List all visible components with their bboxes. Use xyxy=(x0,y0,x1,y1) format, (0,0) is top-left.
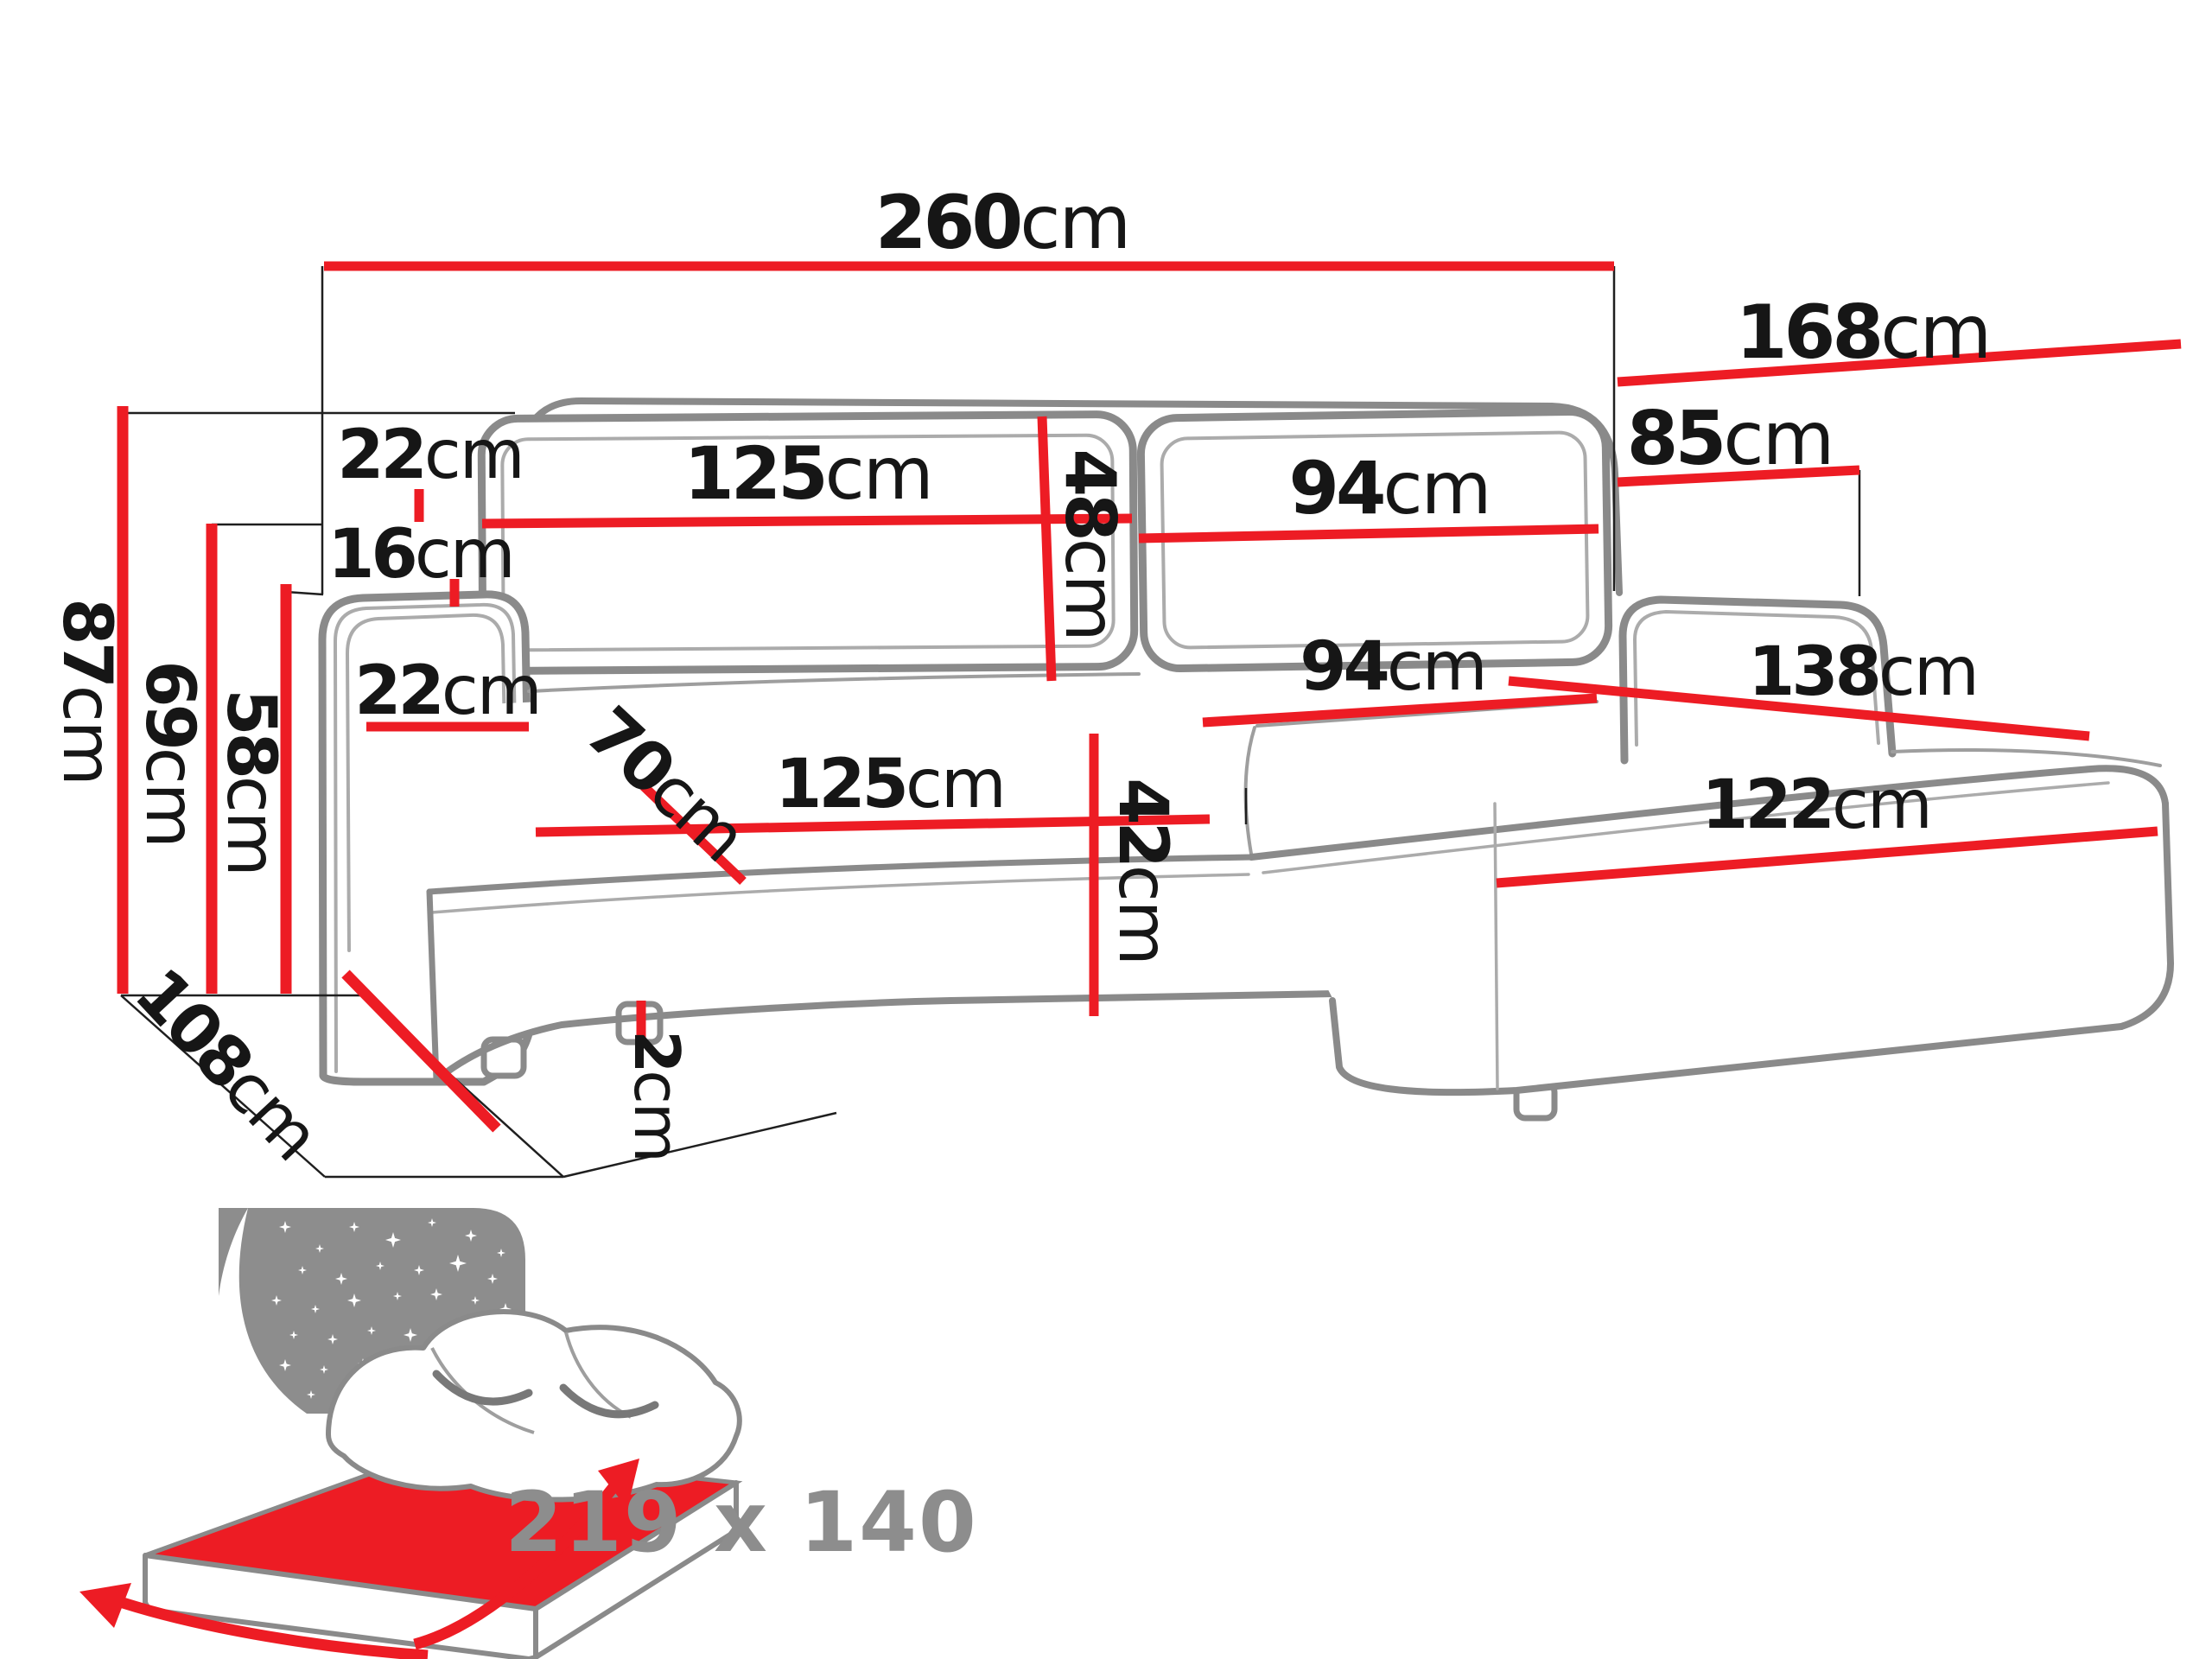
label-backrest-right-height: 85cm xyxy=(1627,396,1834,482)
label-total-depth: 108cm xyxy=(119,954,333,1175)
label-armrest-width: 22cm xyxy=(354,652,540,730)
label-seat-right-width: 94cm xyxy=(1300,628,1485,706)
sleeping-function-icon: 219 x 140 xyxy=(79,1208,978,1659)
label-chaise-total-depth: 168cm xyxy=(1736,289,1991,376)
label-armrest-to-cushion-gap: 16cm xyxy=(327,516,513,594)
label-back-cushion-height: 48cm xyxy=(1051,448,1131,639)
label-total-width: 260cm xyxy=(875,180,1130,266)
label-chaise-diagonal-length: 138cm xyxy=(1748,633,1978,711)
label-seat-left-width: 125cm xyxy=(775,746,1005,823)
sofa-dimension-diagram: 260cm 168cm 85cm 125cm 94cm 22cm 16cm 22… xyxy=(0,0,2212,1659)
diagram-canvas: 260cm 168cm 85cm 125cm 94cm 22cm 16cm 22… xyxy=(0,0,2212,1659)
label-backrest-height: 69cm xyxy=(130,660,208,846)
label-chaise-front-width: 122cm xyxy=(1701,766,1931,844)
dim-line-125-back xyxy=(482,518,1132,524)
label-back-cushion-thickness: 22cm xyxy=(337,416,523,494)
label-back-cushion-left-width: 125cm xyxy=(683,431,931,516)
label-total-height: 87cm xyxy=(48,598,125,784)
chaise-right-back-edge xyxy=(1892,750,2160,766)
label-foot-height: 2cm xyxy=(620,1030,693,1161)
label-armrest-height: 58cm xyxy=(212,689,289,874)
label-seat-front-height: 42cm xyxy=(1103,778,1181,963)
sleeping-area-size-label: 219 x 140 xyxy=(505,1474,978,1571)
floor-front-line-2 xyxy=(563,1113,836,1177)
label-back-cushion-right-width: 94cm xyxy=(1289,446,1491,531)
